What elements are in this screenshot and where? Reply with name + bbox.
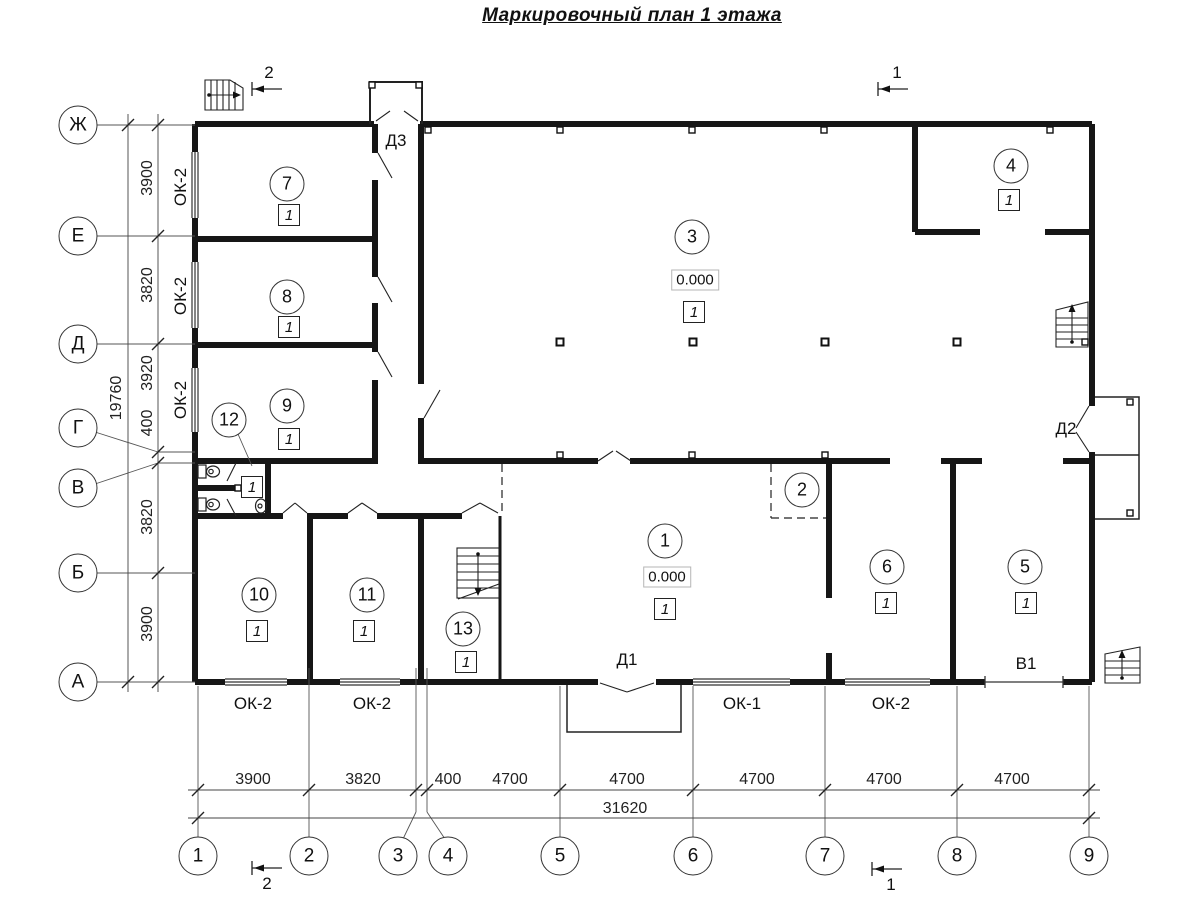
dim-bottom-seg-1: 3900 [235, 771, 271, 789]
room-5-number: 5 [1008, 550, 1043, 585]
section-mark-1-top: 1 [892, 63, 901, 83]
axis-col-2: 2 [290, 837, 329, 876]
window-mark-ok2-left-2: ОК-2 [171, 277, 191, 315]
axis-col-3: 3 [379, 837, 418, 876]
room-12-number: 12 [212, 403, 247, 438]
dim-left-seg-4: 400 [139, 410, 157, 437]
section-mark-2-top: 2 [264, 63, 273, 83]
dim-bottom-overall: 31620 [603, 800, 648, 818]
room-8-number: 8 [270, 280, 305, 315]
gate-mark-v1: В1 [1016, 654, 1037, 674]
exterior-stair-top-icon [205, 80, 243, 110]
axis-row-v: В [59, 469, 98, 508]
dim-left-seg-1: 3900 [139, 160, 157, 196]
dim-left-overall: 19760 [108, 376, 126, 421]
drawing-title: Маркировочный план 1 этажа [482, 5, 782, 27]
dim-bottom-seg-7: 4700 [866, 771, 902, 789]
room-1-elevation: 0.000 [643, 567, 691, 588]
axis-col-4: 4 [429, 837, 468, 876]
axis-row-a: А [59, 663, 98, 702]
section-mark-1-bottom: 1 [886, 875, 895, 895]
section-mark-2-bottom: 2 [262, 874, 271, 894]
axis-col-9: 9 [1070, 837, 1109, 876]
room-1-category: 1 [654, 598, 676, 620]
window-mark-ok2-bottom-3: ОК-2 [872, 694, 910, 714]
room-11-category: 1 [353, 620, 375, 642]
gate-opening [985, 676, 1063, 688]
dim-bottom-seg-4: 4700 [492, 771, 528, 789]
room-12-category: 1 [241, 476, 263, 498]
dim-left-seg-3: 3920 [139, 355, 157, 391]
room-13-number: 13 [446, 612, 481, 647]
room-9-number: 9 [270, 389, 305, 424]
room-3-number: 3 [675, 220, 710, 255]
room-7-category: 1 [278, 204, 300, 226]
room-8-category: 1 [278, 316, 300, 338]
axis-row-d: Д [59, 325, 98, 364]
window-glyphs [192, 152, 930, 685]
dim-left-seg-2: 3820 [139, 267, 157, 303]
room-2-number: 2 [785, 473, 820, 508]
window-mark-ok1-bottom: ОК-1 [723, 694, 761, 714]
axis-col-6: 6 [674, 837, 713, 876]
dim-bottom-seg-6: 4700 [739, 771, 775, 789]
axis-row-g: Г [59, 409, 98, 448]
room-9-category: 1 [278, 428, 300, 450]
dim-bottom-seg-5: 4700 [609, 771, 645, 789]
room-4-number: 4 [994, 149, 1029, 184]
room-6-number: 6 [870, 550, 905, 585]
door-mark-d1: Д1 [617, 650, 638, 670]
dim-bottom-seg-8: 4700 [994, 771, 1030, 789]
axis-row-e: Е [59, 217, 98, 256]
dim-bottom-seg-3: 400 [435, 771, 462, 789]
room-13-category: 1 [455, 651, 477, 673]
room-11-number: 11 [350, 578, 385, 613]
window-mark-ok2-left-3: ОК-2 [171, 381, 191, 419]
window-mark-ok2-bottom-2: ОК-2 [353, 694, 391, 714]
window-mark-ok2-bottom-1: ОК-2 [234, 694, 272, 714]
sink-icon [256, 499, 267, 513]
columns [557, 339, 961, 346]
axis-col-1: 1 [179, 837, 218, 876]
interior-stair-room13-icon [457, 548, 499, 599]
pilasters [235, 82, 1133, 516]
floor-plan-drawing [0, 0, 1200, 900]
room-3-elevation: 0.000 [671, 270, 719, 291]
door-mark-d2: Д2 [1056, 419, 1077, 439]
room-4-category: 1 [998, 189, 1020, 211]
axis-row-zh: Ж [59, 106, 98, 145]
axis-row-b: Б [59, 554, 98, 593]
room-3-category: 1 [683, 301, 705, 323]
exterior-stair-bottom-icon [1105, 647, 1140, 683]
dim-left-seg-5: 3820 [139, 499, 157, 535]
room-10-number: 10 [242, 578, 277, 613]
dim-bottom-seg-2: 3820 [345, 771, 381, 789]
entrance-porch [567, 685, 681, 732]
room-1-number: 1 [648, 524, 683, 559]
window-mark-ok2-left-1: ОК-2 [171, 168, 191, 206]
dim-left-seg-6: 3900 [139, 606, 157, 642]
door-mark-d3: Д3 [386, 131, 407, 151]
dashed-partitions [502, 464, 826, 518]
vestibule-right [1095, 397, 1139, 519]
axis-col-7: 7 [806, 837, 845, 876]
axis-col-8: 8 [938, 837, 977, 876]
walls [195, 124, 1092, 682]
room-6-category: 1 [875, 592, 897, 614]
room-7-number: 7 [270, 167, 305, 202]
axis-col-5: 5 [541, 837, 580, 876]
room-10-category: 1 [246, 620, 268, 642]
floor-plan: Маркировочный план 1 этажа Ж Е Д Г В Б А… [0, 0, 1200, 900]
room-5-category: 1 [1015, 592, 1037, 614]
